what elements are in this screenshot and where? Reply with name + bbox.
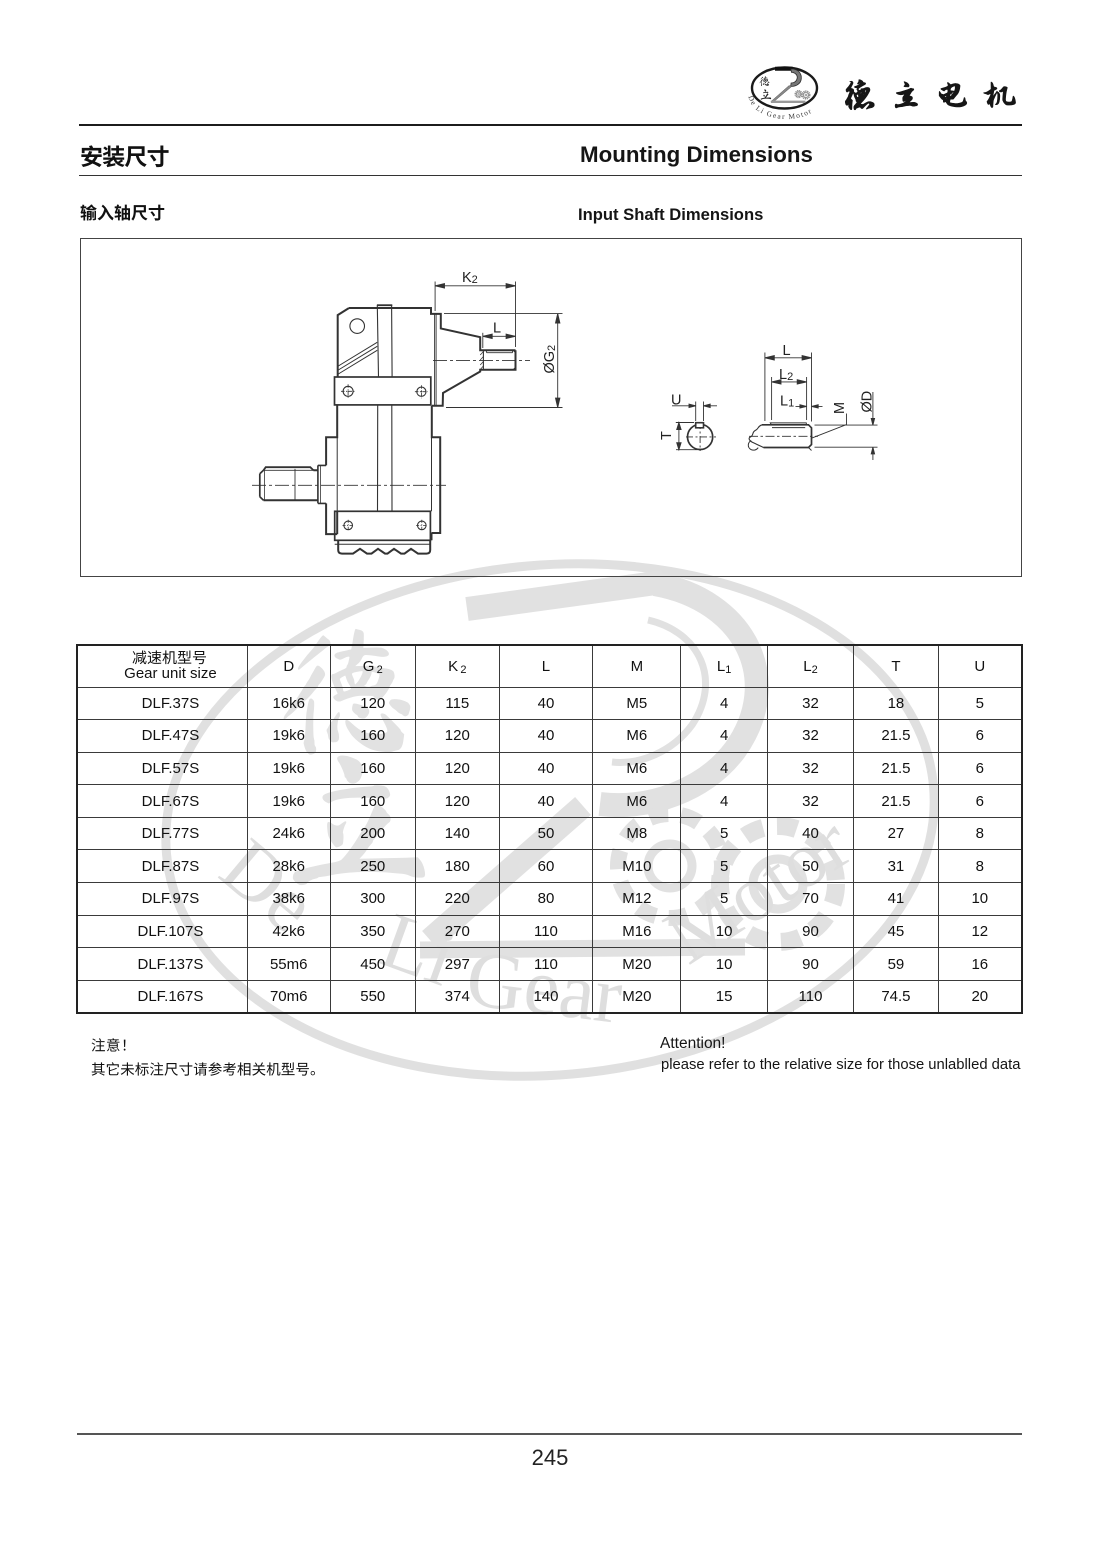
svg-text:ØD: ØD (860, 391, 876, 413)
svg-text:ØG2: ØG2 (542, 345, 558, 374)
svg-text:M: M (832, 402, 848, 414)
svg-text:L1: L1 (780, 394, 794, 410)
svg-text:U: U (671, 393, 681, 409)
svg-text:L: L (493, 321, 501, 337)
svg-text:T: T (659, 431, 675, 440)
svg-text:L2: L2 (779, 367, 793, 383)
svg-text:L: L (783, 343, 791, 359)
svg-text:K2: K2 (462, 270, 478, 286)
